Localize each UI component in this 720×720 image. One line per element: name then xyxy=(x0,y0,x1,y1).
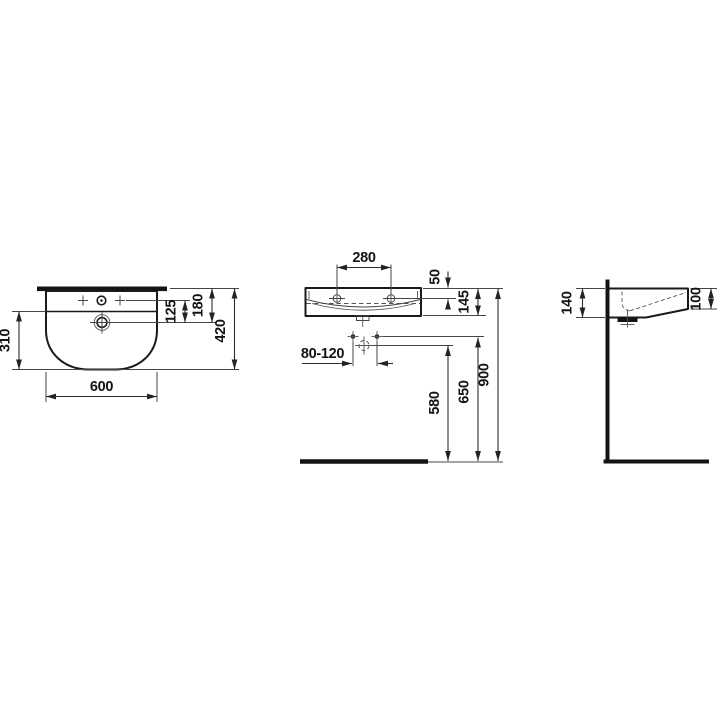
dim-label-310: 310 xyxy=(0,329,14,353)
corner-edge-ticks xyxy=(309,291,418,299)
dim-width: 600 xyxy=(46,379,157,397)
dim-fixing-bolt-spacing: 80-120 xyxy=(301,346,393,364)
technical-drawing: 310 125 180 420 600 xyxy=(0,0,720,720)
dim-front-edge-height: 100 xyxy=(689,287,712,311)
hidden-bowl-lines xyxy=(622,292,686,311)
basin-profile-outline xyxy=(610,289,689,318)
dim-rear-to-drain: 180 xyxy=(191,289,213,323)
top-view: 310 125 180 420 600 xyxy=(0,287,239,403)
dim-label-80-120: 80-120 xyxy=(301,346,345,362)
mounting-hole-left xyxy=(329,294,345,304)
dim-label-650: 650 xyxy=(457,380,473,404)
trap-connection-crosshair xyxy=(355,337,373,355)
dim-label-580: 580 xyxy=(427,391,443,415)
dim-label-100: 100 xyxy=(689,287,705,311)
dim-overall-depth: 420 xyxy=(213,289,235,370)
mounting-hole-right xyxy=(383,294,398,304)
dim-label-125: 125 xyxy=(164,300,180,324)
dim-trap-height: 580 xyxy=(427,346,448,461)
basin-front-outline xyxy=(306,288,422,316)
dim-apron-height: 145 xyxy=(457,289,479,316)
dim-bolt-height: 650 xyxy=(457,338,479,462)
dim-label-280: 280 xyxy=(352,250,376,266)
waste-trap xyxy=(618,310,638,328)
dim-tap-hole-spacing: 280 xyxy=(337,250,391,268)
dim-bowl-depth: 310 xyxy=(0,312,19,370)
dim-depth-at-wall: 140 xyxy=(560,289,583,318)
dim-label-180: 180 xyxy=(191,294,207,318)
floor-line xyxy=(300,462,503,463)
fixing-bolt-left xyxy=(348,331,359,342)
dim-label-50: 50 xyxy=(428,269,444,285)
dim-tap-to-drain: 125 xyxy=(164,300,186,324)
dim-label-600: 600 xyxy=(90,379,114,395)
bowl-curves xyxy=(307,300,421,311)
fixing-bolt-right xyxy=(372,331,384,342)
drain-outlet xyxy=(357,316,370,327)
side-view: 140 100 xyxy=(560,282,718,462)
dim-label-140: 140 xyxy=(560,291,576,315)
front-view: 280 50 145 80-120 580 650 900 xyxy=(300,250,503,462)
dim-label-420: 420 xyxy=(213,319,229,343)
dim-label-145: 145 xyxy=(457,290,473,314)
tap-hole xyxy=(97,296,106,305)
dim-label-900: 900 xyxy=(477,363,493,387)
dim-rim-height: 900 xyxy=(477,289,499,461)
